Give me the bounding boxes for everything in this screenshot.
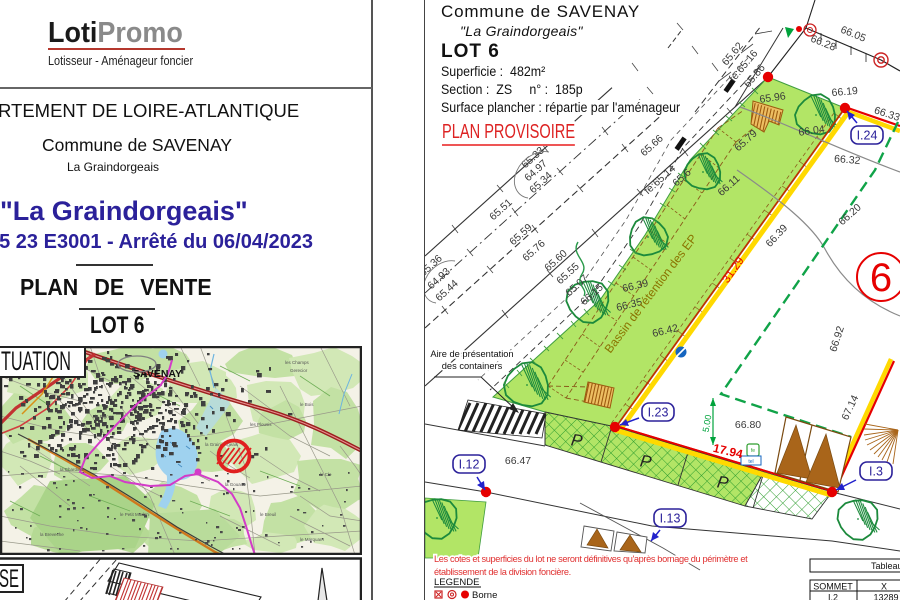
svg-text:Tableau des coord: Tableau des coord — [871, 561, 900, 571]
svg-text:Gerecior: Gerecior — [290, 368, 308, 373]
svg-text:I.3: I.3 — [869, 465, 883, 479]
svg-text:I.2: I.2 — [828, 593, 838, 600]
svg-text:66.19: 66.19 — [831, 85, 858, 99]
svg-text:tel: tel — [748, 459, 753, 465]
svg-text:X: X — [881, 582, 887, 592]
svg-text:Borne: Borne — [472, 590, 497, 600]
svg-text:66.80: 66.80 — [735, 419, 761, 431]
svg-text:LEGENDE: LEGENDE — [434, 577, 479, 588]
svg-text:les Plousis: les Plousis — [250, 422, 272, 427]
svg-text:la Breveche: la Breveche — [40, 532, 64, 537]
svg-text:le Marquam: le Marquam — [300, 537, 324, 542]
svg-text:la Gouarre: la Gouarre — [225, 482, 247, 487]
svg-text:le Petit Morlan: le Petit Morlan — [120, 512, 149, 517]
svg-text:le Bignon: le Bignon — [95, 414, 114, 419]
svg-text:le Breuil: le Breuil — [260, 512, 276, 517]
svg-text:SAVENAY: SAVENAY — [133, 368, 182, 380]
svg-text:le Cle: le Cle — [320, 472, 332, 477]
svg-text:I.23: I.23 — [648, 406, 669, 420]
svg-text:66.32: 66.32 — [834, 153, 861, 167]
svg-text:13289: 13289 — [873, 593, 898, 600]
svg-text:I.12: I.12 — [459, 458, 480, 472]
svg-text:la Chardiere: la Chardiere — [60, 467, 85, 472]
svg-text:établissement de la division f: établissement de la division foncière. — [434, 567, 571, 577]
svg-text:le Bois: le Bois — [300, 402, 314, 407]
svg-text:66.47: 66.47 — [505, 455, 531, 467]
svg-text:fe: fe — [751, 448, 755, 454]
svg-text:des containers: des containers — [442, 361, 503, 371]
svg-text:les Champs: les Champs — [285, 360, 310, 365]
svg-text:Les cotes et superficies du lo: Les cotes et superficies du lot ne seron… — [434, 554, 748, 564]
svg-text:I.24: I.24 — [857, 129, 878, 143]
svg-text:Aire de présentation: Aire de présentation — [430, 349, 513, 359]
svg-text:6: 6 — [870, 256, 892, 300]
svg-text:I.13: I.13 — [660, 512, 681, 526]
svg-text:SOMMET: SOMMET — [813, 582, 853, 592]
